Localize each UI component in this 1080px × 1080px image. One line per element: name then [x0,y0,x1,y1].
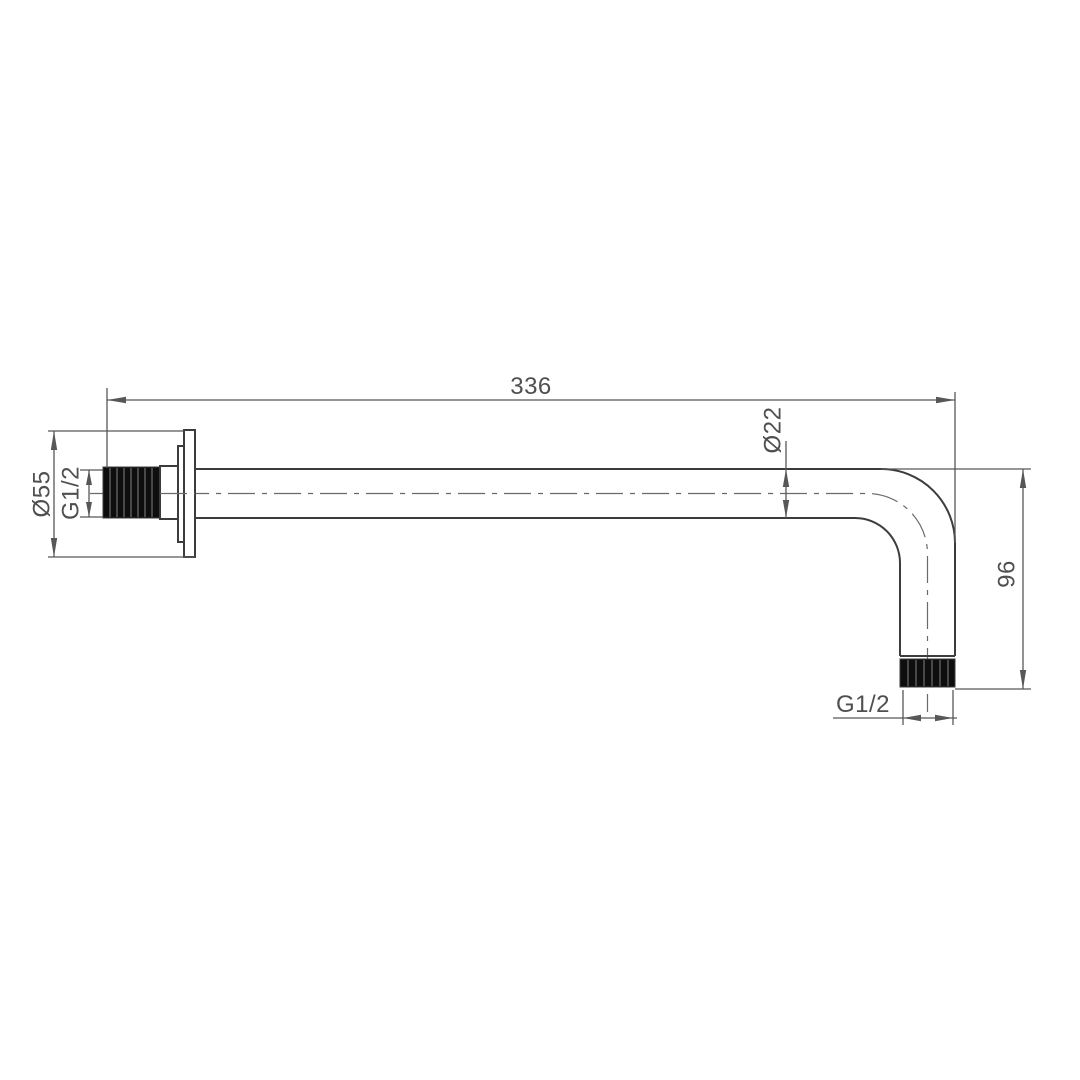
pipe-inner-edge [195,518,900,656]
arrow-up [86,470,92,485]
arm-pipe [195,469,955,656]
inlet-thread-label: G1/2 [58,466,85,520]
centerlines [90,494,928,713]
wall-thread-ridges [110,468,152,517]
outlet-thread-label: G1/2 [836,691,890,718]
flange-nut [160,466,178,519]
arrow-up [51,431,57,450]
pipe-outer-edge [195,469,955,656]
pipe-diameter-label: Ø22 [760,407,787,454]
wall-thread [103,467,160,518]
arrow-left [107,397,126,403]
dimension-pipe-diameter: Ø22 [760,407,790,518]
technical-drawing-canvas: 336 Ø22 Ø55 G1/2 [0,0,1080,1080]
shower-arm-dimension-drawing: 336 Ø22 Ø55 G1/2 [0,0,1080,1080]
arrow-down [86,502,92,517]
pipe-centerline [90,494,928,713]
wall-flange [160,430,195,557]
dimension-outlet-thread: G1/2 [833,690,957,725]
overall-length-label: 336 [510,373,552,400]
arrow-down [783,500,789,518]
arrow-up [783,469,789,487]
arrow-up [1020,469,1026,488]
flange-diameter-label: Ø55 [29,471,56,518]
outlet-thread [900,659,955,687]
arrow-down [51,538,57,557]
arrow-right [936,397,955,403]
shower-arm-body [103,430,955,687]
arrow-right [935,715,953,721]
arrow-down [1020,670,1026,689]
drop-height-label: 96 [994,560,1021,588]
arrow-left [903,715,921,721]
